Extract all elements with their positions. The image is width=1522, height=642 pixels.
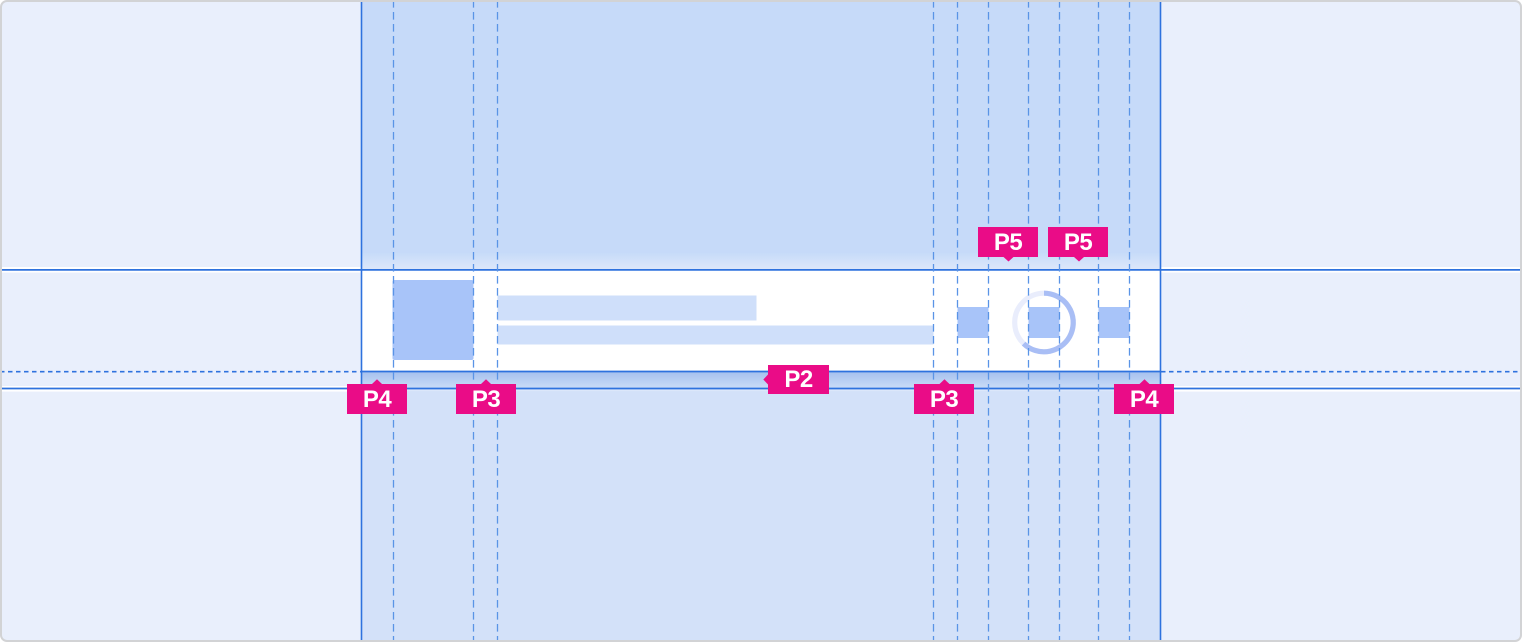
svg-text:P3: P3 (930, 386, 959, 413)
svg-text:P3: P3 (472, 386, 501, 413)
svg-text:P5: P5 (994, 229, 1023, 256)
svg-text:P2: P2 (784, 366, 813, 393)
svg-text:P4: P4 (363, 386, 393, 413)
svg-text:P4: P4 (1130, 386, 1160, 413)
svg-text:P5: P5 (1064, 229, 1093, 256)
